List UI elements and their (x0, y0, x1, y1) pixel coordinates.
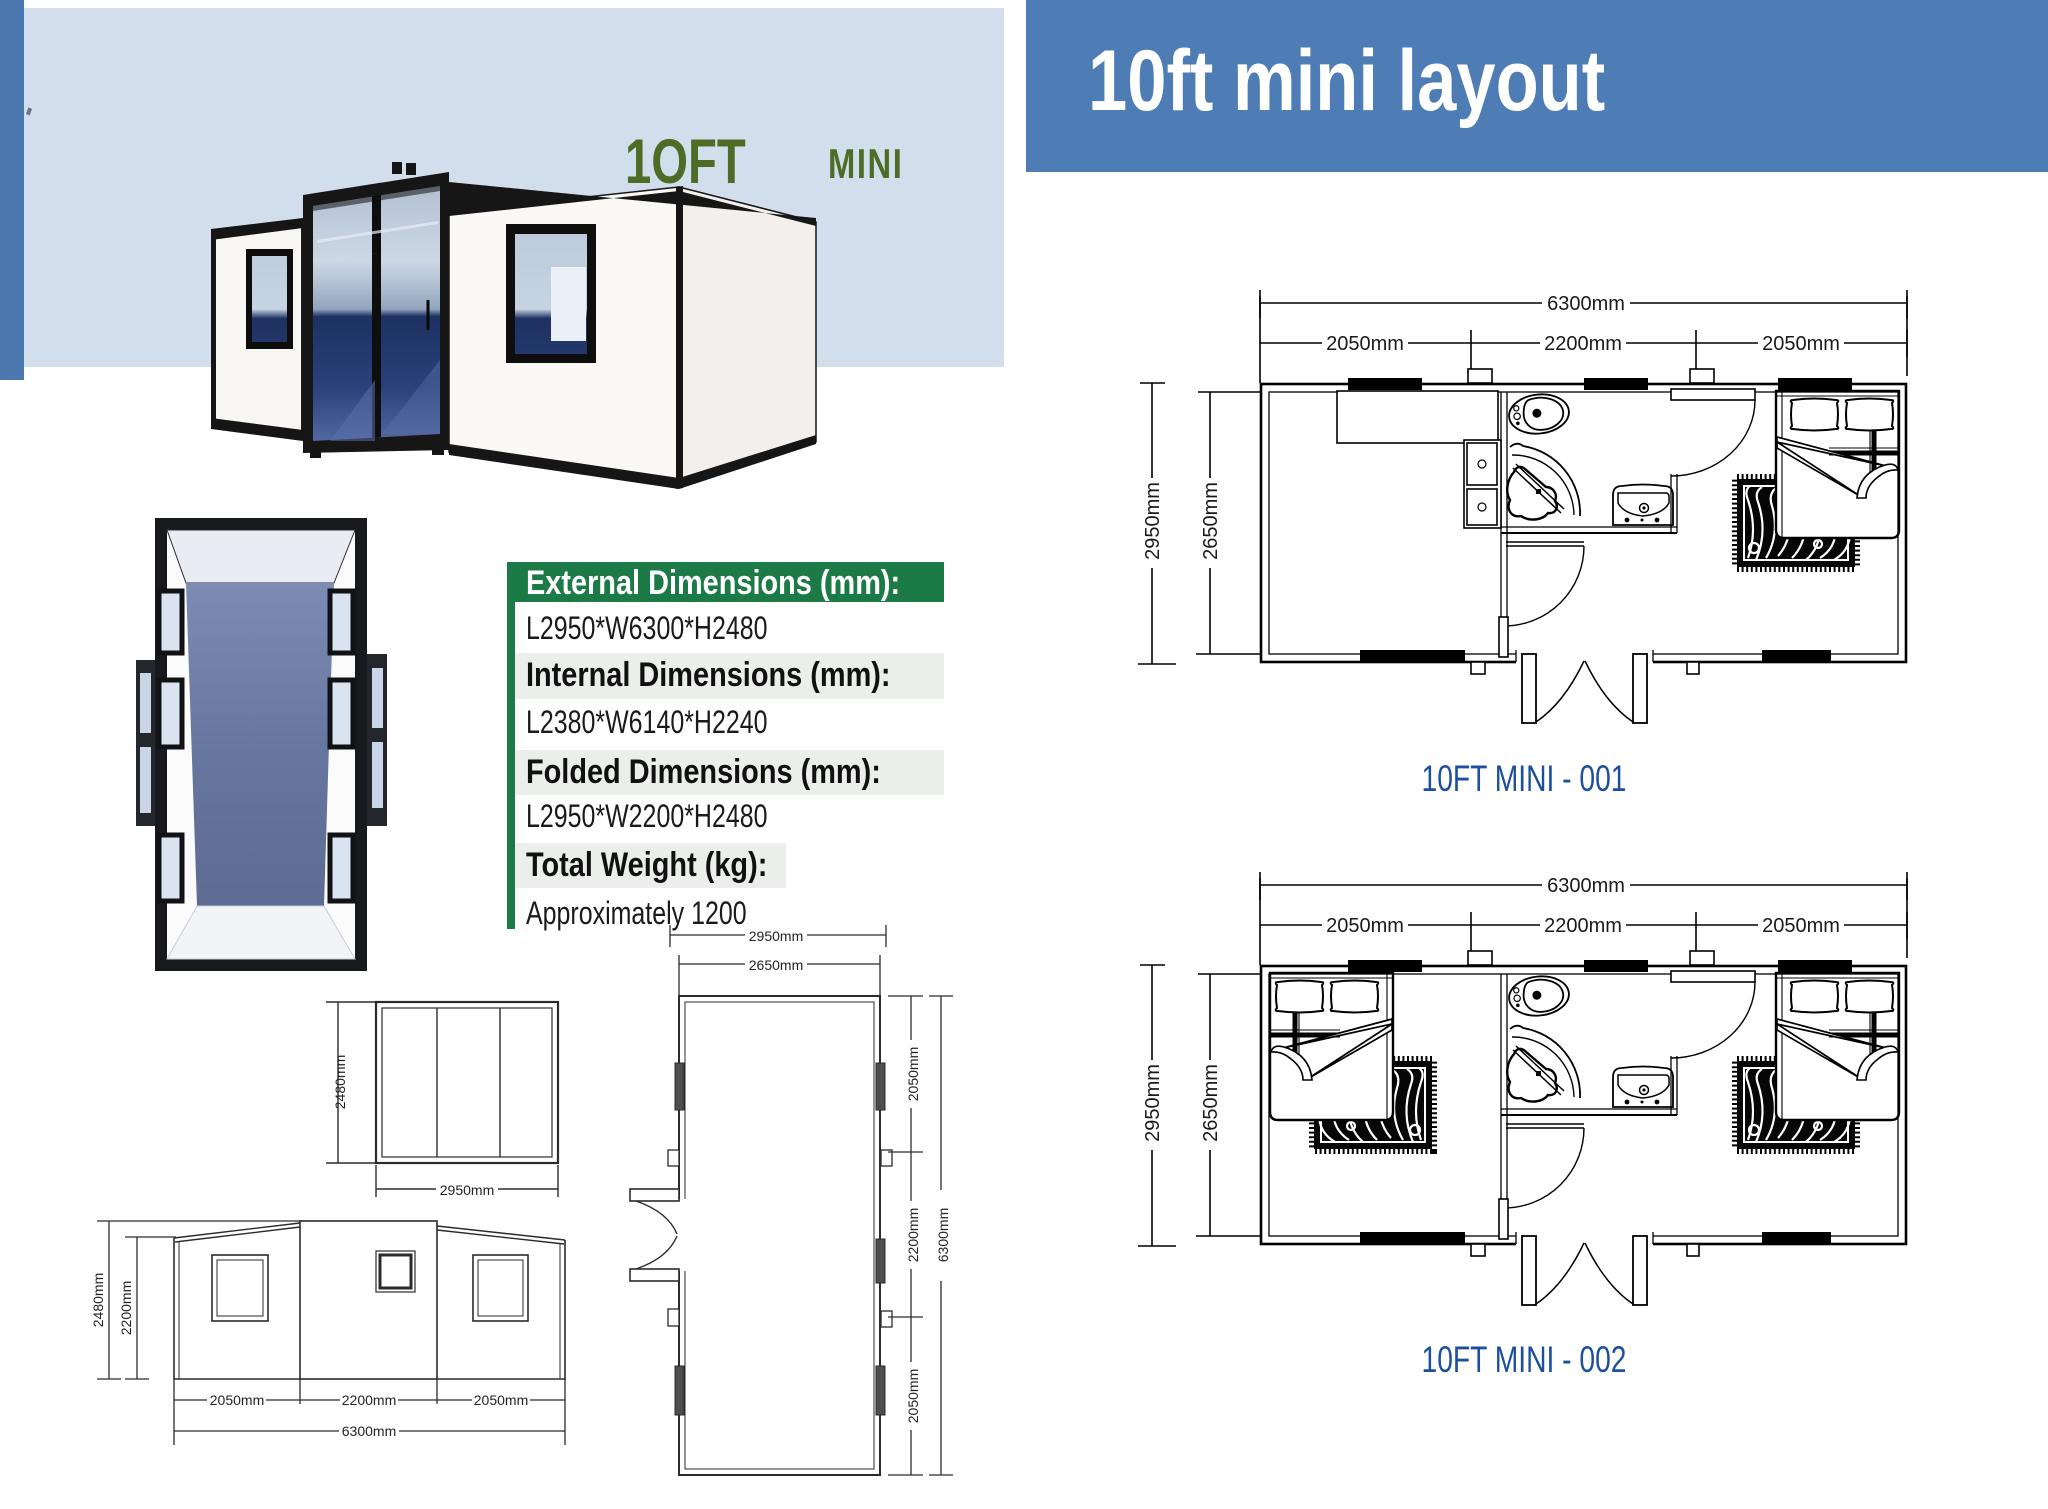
svg-text:2050mm: 2050mm (474, 1392, 528, 1408)
svg-text:2650mm: 2650mm (749, 957, 803, 973)
svg-text:6300mm: 6300mm (342, 1423, 396, 1439)
svg-text:2480mm: 2480mm (332, 1055, 348, 1109)
svg-text:2950mm: 2950mm (440, 1182, 494, 1198)
svg-text:10FT MINI - 002: 10FT MINI - 002 (1422, 1339, 1627, 1380)
svg-text:2200mm: 2200mm (342, 1392, 396, 1408)
svg-text:2200mm: 2200mm (905, 1208, 921, 1262)
svg-text:2050mm: 2050mm (905, 1047, 921, 1101)
svg-text:2050mm: 2050mm (905, 1369, 921, 1423)
svg-text:2200mm: 2200mm (118, 1281, 134, 1335)
svg-text:2950mm: 2950mm (749, 928, 803, 944)
svg-text:2050mm: 2050mm (210, 1392, 264, 1408)
svg-text:6300mm: 6300mm (935, 1208, 951, 1262)
svg-text:10FT MINI - 001: 10FT MINI - 001 (1422, 758, 1627, 799)
svg-text:2480mm: 2480mm (90, 1273, 106, 1327)
